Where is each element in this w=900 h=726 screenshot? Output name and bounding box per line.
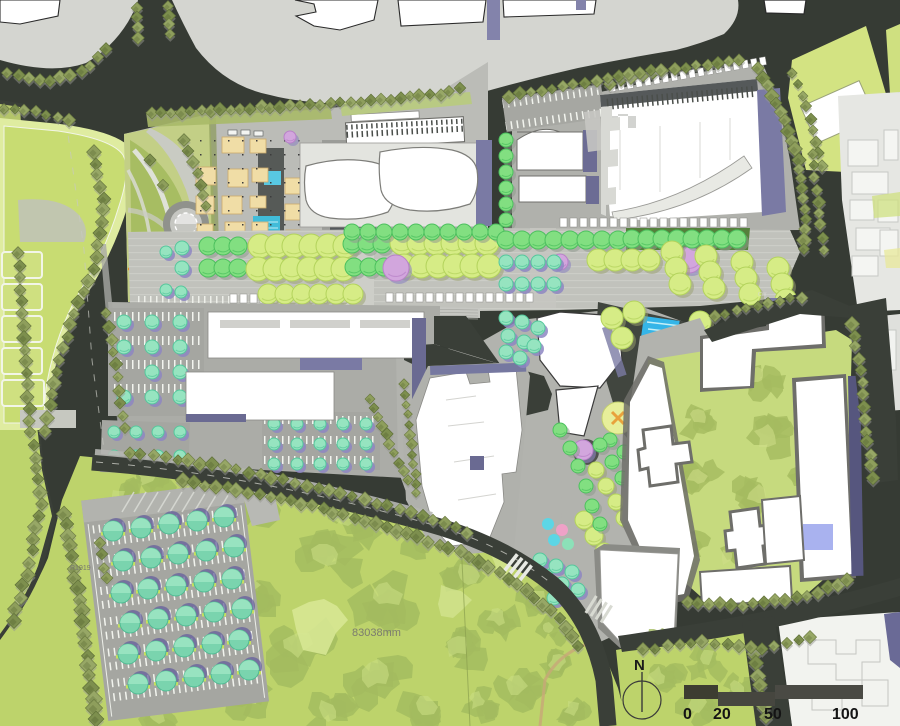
- svg-text:83038mm: 83038mm: [352, 627, 401, 639]
- svg-text:20: 20: [713, 706, 731, 723]
- svg-text:50: 50: [764, 706, 782, 723]
- svg-text:CW: CW: [758, 292, 767, 298]
- svg-text:0: 0: [683, 706, 692, 723]
- svg-text:R1919: R1919: [70, 565, 91, 572]
- svg-text:100: 100: [832, 706, 859, 723]
- svg-text:N: N: [634, 657, 645, 674]
